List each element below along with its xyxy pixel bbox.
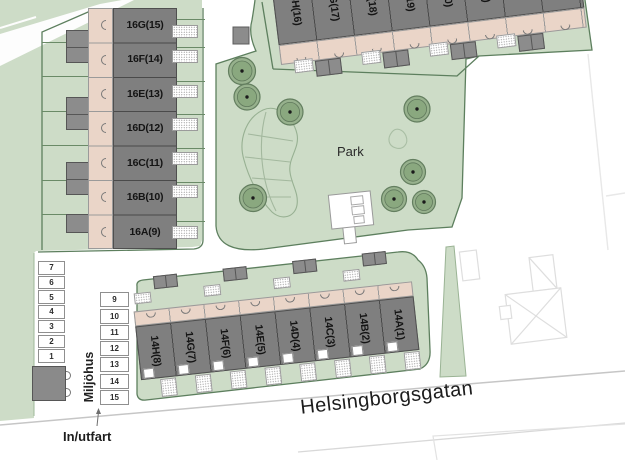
storage-shed bbox=[450, 41, 478, 60]
driveway bbox=[160, 377, 178, 397]
patio bbox=[172, 152, 198, 165]
parking-space: 6 bbox=[38, 276, 65, 290]
patio bbox=[172, 85, 198, 98]
parking-number: 5 bbox=[49, 293, 53, 302]
garage-door bbox=[317, 349, 329, 360]
storage-shed bbox=[66, 97, 90, 130]
parking-space: 13 bbox=[100, 357, 129, 372]
garden-divider bbox=[177, 19, 205, 20]
tree-icon bbox=[413, 191, 436, 214]
storage-shed bbox=[517, 33, 545, 52]
garage-door bbox=[386, 341, 398, 352]
storage-shed bbox=[362, 251, 387, 267]
storage-shed bbox=[66, 30, 90, 63]
parking-space: 12 bbox=[100, 341, 129, 356]
storage-shed bbox=[222, 266, 247, 282]
driveway bbox=[230, 370, 248, 390]
garden-divider bbox=[177, 47, 205, 48]
garage-door bbox=[143, 368, 155, 379]
parking-space: 2 bbox=[38, 335, 65, 349]
parking-space: 11 bbox=[100, 325, 129, 340]
storage-shed bbox=[66, 162, 90, 195]
parking-number: 9 bbox=[112, 295, 116, 304]
parking-space: 9 bbox=[100, 292, 129, 307]
door-arc bbox=[101, 192, 106, 202]
tree-icon bbox=[277, 99, 303, 125]
garage-door bbox=[178, 364, 190, 375]
garden-divider bbox=[177, 221, 205, 222]
parking-space: 10 bbox=[100, 309, 129, 324]
door-arc bbox=[101, 20, 106, 30]
existing-buildings bbox=[459, 250, 566, 344]
unit-label: 16E(13) bbox=[113, 77, 177, 111]
parking-space: 3 bbox=[38, 320, 65, 334]
tree-icon bbox=[229, 58, 256, 85]
storage-shed bbox=[66, 214, 90, 233]
patio bbox=[496, 33, 516, 48]
parking-number: 14 bbox=[110, 377, 119, 386]
patio bbox=[361, 50, 381, 65]
parking-space: 14 bbox=[100, 374, 129, 389]
tree-icon bbox=[240, 185, 267, 212]
patio bbox=[172, 118, 198, 131]
patio bbox=[273, 276, 291, 289]
parking-number: 15 bbox=[110, 393, 119, 402]
door-arc bbox=[101, 227, 106, 237]
parking-number: 10 bbox=[110, 312, 119, 321]
garage-door bbox=[282, 353, 294, 364]
patio bbox=[429, 42, 449, 57]
parking-number: 3 bbox=[49, 322, 53, 331]
garage-door bbox=[212, 360, 224, 371]
tree-icon bbox=[404, 96, 430, 122]
garage-door bbox=[247, 356, 259, 367]
parking-number: 1 bbox=[49, 352, 53, 361]
garden-divider bbox=[177, 148, 205, 149]
patio bbox=[172, 226, 198, 239]
patio bbox=[342, 269, 360, 282]
parking-number: 11 bbox=[110, 328, 118, 337]
patio bbox=[134, 292, 152, 305]
garden-divider bbox=[177, 114, 205, 115]
garden-divider bbox=[42, 145, 88, 146]
tree-icon bbox=[234, 84, 260, 110]
garden-divider bbox=[177, 182, 205, 183]
driveway bbox=[195, 374, 213, 394]
patio bbox=[294, 58, 314, 73]
parking-space: 7 bbox=[38, 261, 65, 275]
park-label: Park bbox=[337, 144, 364, 159]
door-arc bbox=[101, 158, 106, 168]
site-plan: 16G(15) 16F(14) 16E(13) 16D(12) 16C(11) … bbox=[0, 0, 625, 460]
small-shed bbox=[233, 27, 249, 44]
west-housing-block: 16G(15) 16F(14) 16E(13) 16D(12) 16C(11) … bbox=[0, 0, 210, 260]
parking-number: 12 bbox=[110, 344, 119, 353]
parking-space: 15 bbox=[100, 390, 129, 405]
storage-shed bbox=[382, 49, 410, 68]
unit-label: 16G(15) bbox=[113, 8, 177, 42]
storage-shed bbox=[153, 274, 178, 290]
unit-label: 16C(11) bbox=[113, 146, 177, 180]
garden-divider bbox=[42, 76, 88, 77]
entrance-label: In/utfart bbox=[63, 429, 111, 444]
driveway bbox=[299, 362, 317, 382]
waste-house-label: Miljöhus bbox=[82, 337, 96, 417]
driveway bbox=[334, 358, 352, 378]
driveway bbox=[369, 355, 387, 375]
garage-door bbox=[352, 345, 364, 356]
door-arc bbox=[101, 123, 106, 133]
patio bbox=[172, 50, 198, 63]
patio bbox=[172, 25, 198, 38]
storage-shed bbox=[292, 259, 317, 275]
waste-house-building bbox=[32, 366, 66, 401]
unit-label: 16F(14) bbox=[113, 42, 177, 76]
garden-divider bbox=[177, 81, 205, 82]
tree-icon bbox=[382, 187, 407, 212]
unit-label: 16B(10) bbox=[113, 180, 177, 214]
parking-number: 13 bbox=[110, 360, 119, 369]
storage-shed bbox=[315, 58, 343, 77]
parking-number: 4 bbox=[49, 307, 53, 316]
parking-space: 1 bbox=[38, 349, 65, 363]
door-arc bbox=[101, 55, 106, 65]
parking-number: 7 bbox=[49, 263, 53, 272]
tree-icon bbox=[401, 160, 426, 185]
unit-label: 16D(12) bbox=[113, 111, 177, 145]
unit-label: 16A(9) bbox=[113, 215, 177, 249]
parking-space: 4 bbox=[38, 305, 65, 319]
parking-number: 6 bbox=[49, 278, 53, 287]
patio bbox=[172, 185, 198, 198]
patio bbox=[203, 284, 221, 297]
driveway bbox=[404, 351, 422, 371]
driveway bbox=[264, 366, 282, 386]
property-lines bbox=[588, 54, 625, 250]
parking-space: 5 bbox=[38, 290, 65, 304]
door-arc bbox=[101, 89, 106, 99]
parking-number: 2 bbox=[49, 337, 53, 346]
